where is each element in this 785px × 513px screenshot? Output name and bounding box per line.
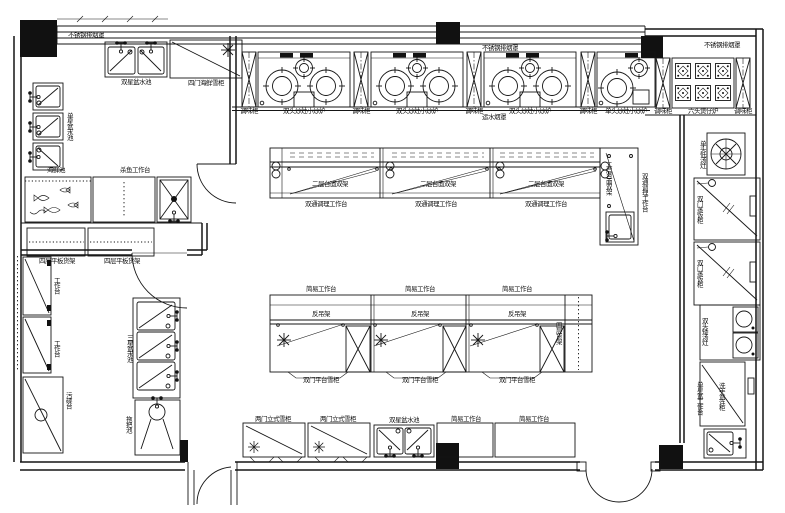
wok-stove-4 bbox=[597, 52, 655, 107]
simple-worktable-bottom-2 bbox=[495, 423, 575, 457]
spice-cabinet-2 bbox=[354, 52, 368, 107]
floor-plan: 不锈钢排烟罩不锈钢排烟罩不锈钢排烟罩运水烟罩双星盆水池四门海鲜雪柜调味柜双头炒灶… bbox=[0, 0, 785, 513]
spice-cabinet-5 bbox=[656, 58, 670, 108]
rice-steamer-1 bbox=[694, 178, 760, 240]
four-tier-racks bbox=[27, 228, 154, 256]
island-return-sink-unit bbox=[600, 148, 638, 245]
spice-cabinet-3 bbox=[467, 52, 481, 107]
single-sinks-left-wall bbox=[28, 83, 63, 170]
double-sink-bottom bbox=[374, 425, 434, 458]
hand-sink-right bbox=[704, 429, 746, 458]
double-swing-door-bottom bbox=[577, 462, 660, 502]
spice-cabinet-4 bbox=[581, 52, 595, 107]
mop-sink bbox=[135, 396, 180, 455]
door-swing-lower-left bbox=[132, 253, 187, 308]
single-soup-stove bbox=[707, 133, 745, 175]
worktable-left-wall-1 bbox=[23, 257, 51, 315]
rice-steamer-2 bbox=[694, 242, 760, 305]
door-swing-left-room bbox=[197, 164, 236, 203]
seafood-tank bbox=[25, 177, 91, 222]
worktable-left-wall-2 bbox=[23, 317, 51, 373]
double-sink-topleft bbox=[105, 41, 167, 77]
door-bottom-left bbox=[188, 462, 237, 505]
upright-fridge-1 bbox=[243, 423, 305, 462]
double-low-soup-stove bbox=[700, 305, 760, 360]
island-counter-fridges bbox=[270, 295, 592, 378]
structural-columns bbox=[20, 20, 683, 469]
sink-worktable-right bbox=[700, 362, 754, 426]
wok-stove-1 bbox=[258, 52, 350, 107]
island-prep-tables bbox=[270, 148, 609, 198]
partition-walls bbox=[21, 36, 756, 443]
fish-prep-table bbox=[93, 177, 155, 222]
triple-sink-stack bbox=[133, 298, 180, 398]
corner-dish-table bbox=[23, 377, 63, 453]
four-door-fridge-topleft bbox=[170, 40, 242, 78]
spice-cabinet-6 bbox=[736, 58, 750, 108]
six-head-claypot-stove bbox=[672, 58, 734, 108]
wok-stove-3 bbox=[484, 52, 576, 107]
spice-cabinet-1 bbox=[242, 52, 256, 107]
exhaust-hood-duct bbox=[57, 16, 645, 44]
drain-basin bbox=[157, 177, 191, 223]
upright-fridge-2 bbox=[308, 423, 370, 462]
floorplan-linework bbox=[0, 0, 785, 513]
wok-stove-2 bbox=[371, 52, 463, 107]
